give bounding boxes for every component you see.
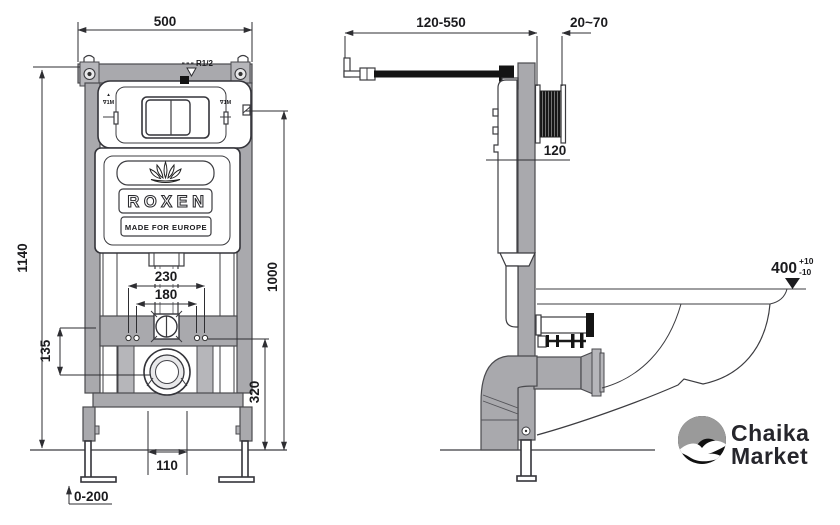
rod-mount xyxy=(538,336,546,347)
dim-bowl-tol-plus: +10 xyxy=(799,256,814,266)
frame-leg-left xyxy=(83,407,95,441)
wall-cap-right xyxy=(561,85,566,143)
dim-holes-floor-label: 320 xyxy=(247,381,262,404)
brand-label: ROXEN xyxy=(127,193,208,211)
fixing-hole xyxy=(202,335,207,340)
dim-plate-floor-label: 1000 xyxy=(265,262,280,292)
inlet-port xyxy=(180,76,189,84)
dim-feet-label: 0-200 xyxy=(74,489,109,504)
level-mark-right: ∇1M xyxy=(220,100,232,106)
cistern-tab xyxy=(493,127,498,134)
technical-drawing-page: ▲ ∇1M ∇1M R1/2 xyxy=(0,0,840,525)
level-mark-left-arrow: ▲ xyxy=(106,92,111,97)
sound-insulation-block xyxy=(540,91,561,137)
wall-section xyxy=(536,85,566,143)
fixing-hole xyxy=(194,335,199,340)
flush-bend-side xyxy=(506,266,518,327)
foot-plate-left xyxy=(81,477,116,482)
adjustable-foot-side xyxy=(521,440,531,477)
dim-wall-label: 20~70 xyxy=(570,15,608,30)
drain-outlet xyxy=(144,349,190,395)
dim-bowl-height-label: 400 xyxy=(771,260,797,277)
flush-buttons xyxy=(146,100,190,135)
housing-clip-right xyxy=(224,112,228,124)
inlet-label: R1/2 xyxy=(196,59,213,68)
tagline-label: MADE FOR EUROPE xyxy=(125,223,207,232)
logo-text-line2: Market xyxy=(731,443,808,469)
dim-bracket-label: 120-550 xyxy=(416,15,466,30)
leg-nub-right xyxy=(236,426,240,434)
dim-inlet-offset-label: 120 xyxy=(544,143,567,158)
level-mark-left: ∇1M xyxy=(103,100,115,106)
dim-height-label: 1140 xyxy=(15,243,30,272)
dim-outer-holes-label: 230 xyxy=(155,269,178,284)
bracket-hook-foot xyxy=(344,71,361,77)
foot-plate-right xyxy=(219,477,254,482)
cistern-step xyxy=(500,253,535,266)
adjustable-foot-left xyxy=(85,441,91,478)
strut-right xyxy=(197,346,213,393)
fixing-hole xyxy=(126,335,131,340)
flush-plate-housing: ▲ ∇1M ∇1M xyxy=(98,81,251,148)
corner-bolt-right-center xyxy=(238,72,242,76)
adjustable-foot-right xyxy=(242,441,248,478)
bowl-rim-edge xyxy=(770,289,787,304)
connector-flange xyxy=(536,315,541,335)
level-triangle xyxy=(785,278,800,289)
cistern-tab xyxy=(493,109,498,116)
dim-inner-holes-label: 180 xyxy=(155,287,178,302)
cistern: ROXEN MADE FOR EUROPE xyxy=(95,148,240,253)
outlet-pipe xyxy=(534,349,604,396)
dim-drain-label: 110 xyxy=(156,458,178,473)
dim-bowl-tol-minus: -10 xyxy=(799,267,812,277)
wall-cap-left xyxy=(536,85,541,143)
bracket-rod xyxy=(374,71,513,78)
leg-nub-left xyxy=(95,426,99,434)
bowl-inner-curve xyxy=(602,304,681,388)
wall-bracket xyxy=(344,58,514,82)
drain-inner xyxy=(156,361,179,384)
frame-top-bar xyxy=(78,64,252,83)
corner-bolt-left-center xyxy=(87,72,91,76)
outlet-cap xyxy=(600,353,604,392)
dim-crossbar-label: 135 xyxy=(38,339,53,362)
frame-leg-right xyxy=(240,407,252,441)
cistern-profile xyxy=(494,80,517,253)
outlet-flare xyxy=(581,352,593,394)
chaika-market-logo: Chaika Market xyxy=(674,412,809,469)
dim-width-label: 500 xyxy=(154,14,177,29)
inlet-connector xyxy=(536,313,594,348)
housing-clip-left xyxy=(114,112,118,124)
side-view xyxy=(344,58,806,481)
foot-plate-side xyxy=(517,476,536,481)
connector-end xyxy=(586,313,594,337)
outlet-body xyxy=(534,357,581,389)
connector-pipe xyxy=(541,317,587,333)
strut-left xyxy=(118,346,134,393)
fixing-hole xyxy=(134,335,139,340)
installation-drawing: ▲ ∇1M ∇1M R1/2 xyxy=(0,0,840,525)
bowl-height-dim: 400 +10 -10 xyxy=(771,256,814,289)
